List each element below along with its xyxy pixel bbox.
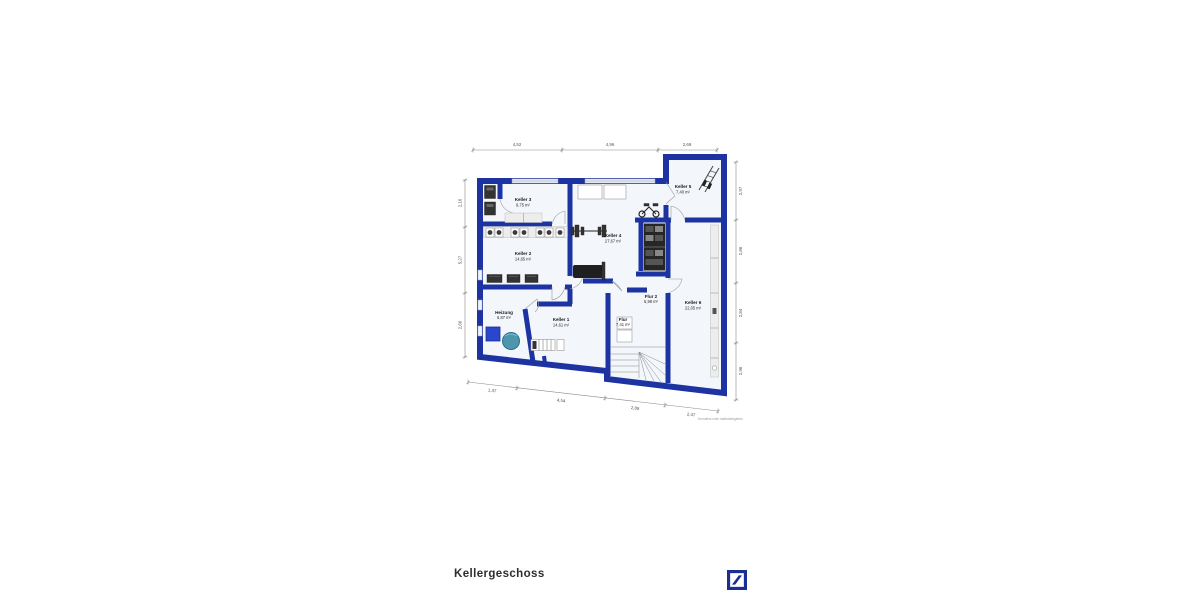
- dim-label: 2,16: [458, 198, 463, 207]
- svg-text:22,05 m²: 22,05 m²: [685, 306, 702, 311]
- room-label-keller4: Keller 4 27,67 m²: [605, 233, 622, 244]
- dim-label: 2,47: [687, 412, 697, 418]
- svg-text:Keller 5: Keller 5: [675, 184, 692, 189]
- svg-text:5,98 m²: 5,98 m²: [644, 299, 659, 304]
- room-label-keller6: Keller 6 22,05 m²: [685, 300, 702, 311]
- page-title: Kellergeschoss: [454, 568, 545, 580]
- dim-right: 2,97 2,86 2,84 2,96: [734, 161, 744, 402]
- radiator-icon: [531, 340, 564, 351]
- svg-text:Keller 2: Keller 2: [515, 251, 532, 256]
- svg-text:Keller 4: Keller 4: [605, 233, 622, 238]
- dim-label: 2,60: [458, 320, 463, 329]
- svg-text:7,40 m²: 7,40 m²: [676, 190, 691, 195]
- dim-label: 2,86: [738, 246, 743, 255]
- dim-label: 2,97: [738, 186, 743, 195]
- slash-icon: [732, 575, 742, 584]
- svg-text:Keller 1: Keller 1: [553, 317, 570, 322]
- dim-label: 4,96: [606, 142, 615, 147]
- svg-text:14,61 m²: 14,61 m²: [553, 323, 570, 328]
- shelf-icon: [505, 213, 542, 223]
- dim-top: 4,52 4,96 2,69: [472, 142, 719, 153]
- room-label-keller1: Keller 1 14,61 m²: [553, 317, 570, 328]
- svg-text:6,87 m²: 6,87 m²: [497, 315, 512, 320]
- room-label-flur2: Flur 2 5,98 m²: [644, 294, 659, 304]
- svg-text:27,67 m²: 27,67 m²: [605, 239, 622, 244]
- room-label-keller2: Keller 2 14,65 m²: [515, 251, 532, 262]
- dim-label: 2,88: [631, 405, 641, 411]
- room-label-keller5: Keller 5 7,40 m²: [675, 184, 692, 195]
- cabinets-icon: [578, 185, 626, 199]
- watermark-text: Grundriss nicht maßstabsgetreu: [698, 417, 744, 421]
- svg-text:Keller 6: Keller 6: [685, 300, 702, 305]
- svg-text:14,65 m²: 14,65 m²: [515, 257, 532, 262]
- room-label-heizung: Heizung 6,87 m²: [495, 310, 513, 320]
- wall-shelf-icon: [711, 225, 719, 377]
- dim-label: 2,69: [683, 142, 692, 147]
- deutsche-bank-logo: [727, 570, 747, 590]
- dim-label: 4,52: [513, 142, 522, 147]
- floor-plan: 4,52 4,96 2,69 2,16 5,27 2,60 2,97 2,86 …: [455, 128, 747, 428]
- dim-left: 2,16 5,27 2,60: [458, 179, 468, 359]
- boiler-tank-icon: [486, 327, 500, 341]
- dim-label: 5,27: [458, 255, 463, 264]
- svg-text:7,41 m²: 7,41 m²: [616, 322, 631, 327]
- dim-label: 2,84: [738, 308, 743, 317]
- svg-text:Keller 3: Keller 3: [515, 197, 532, 202]
- shelf-unit-icon: [644, 224, 665, 271]
- dim-label: 4,54: [557, 398, 567, 404]
- dim-label: 2,96: [738, 366, 743, 375]
- crates-icon: [487, 275, 538, 283]
- washing-machines-icon: [484, 227, 568, 238]
- dim-label: 1,37: [488, 388, 498, 394]
- room-label-keller3: Keller 3 9,75 m²: [515, 197, 532, 208]
- svg-text:9,75 m²: 9,75 m²: [516, 203, 531, 208]
- boiler-icon: [503, 333, 520, 350]
